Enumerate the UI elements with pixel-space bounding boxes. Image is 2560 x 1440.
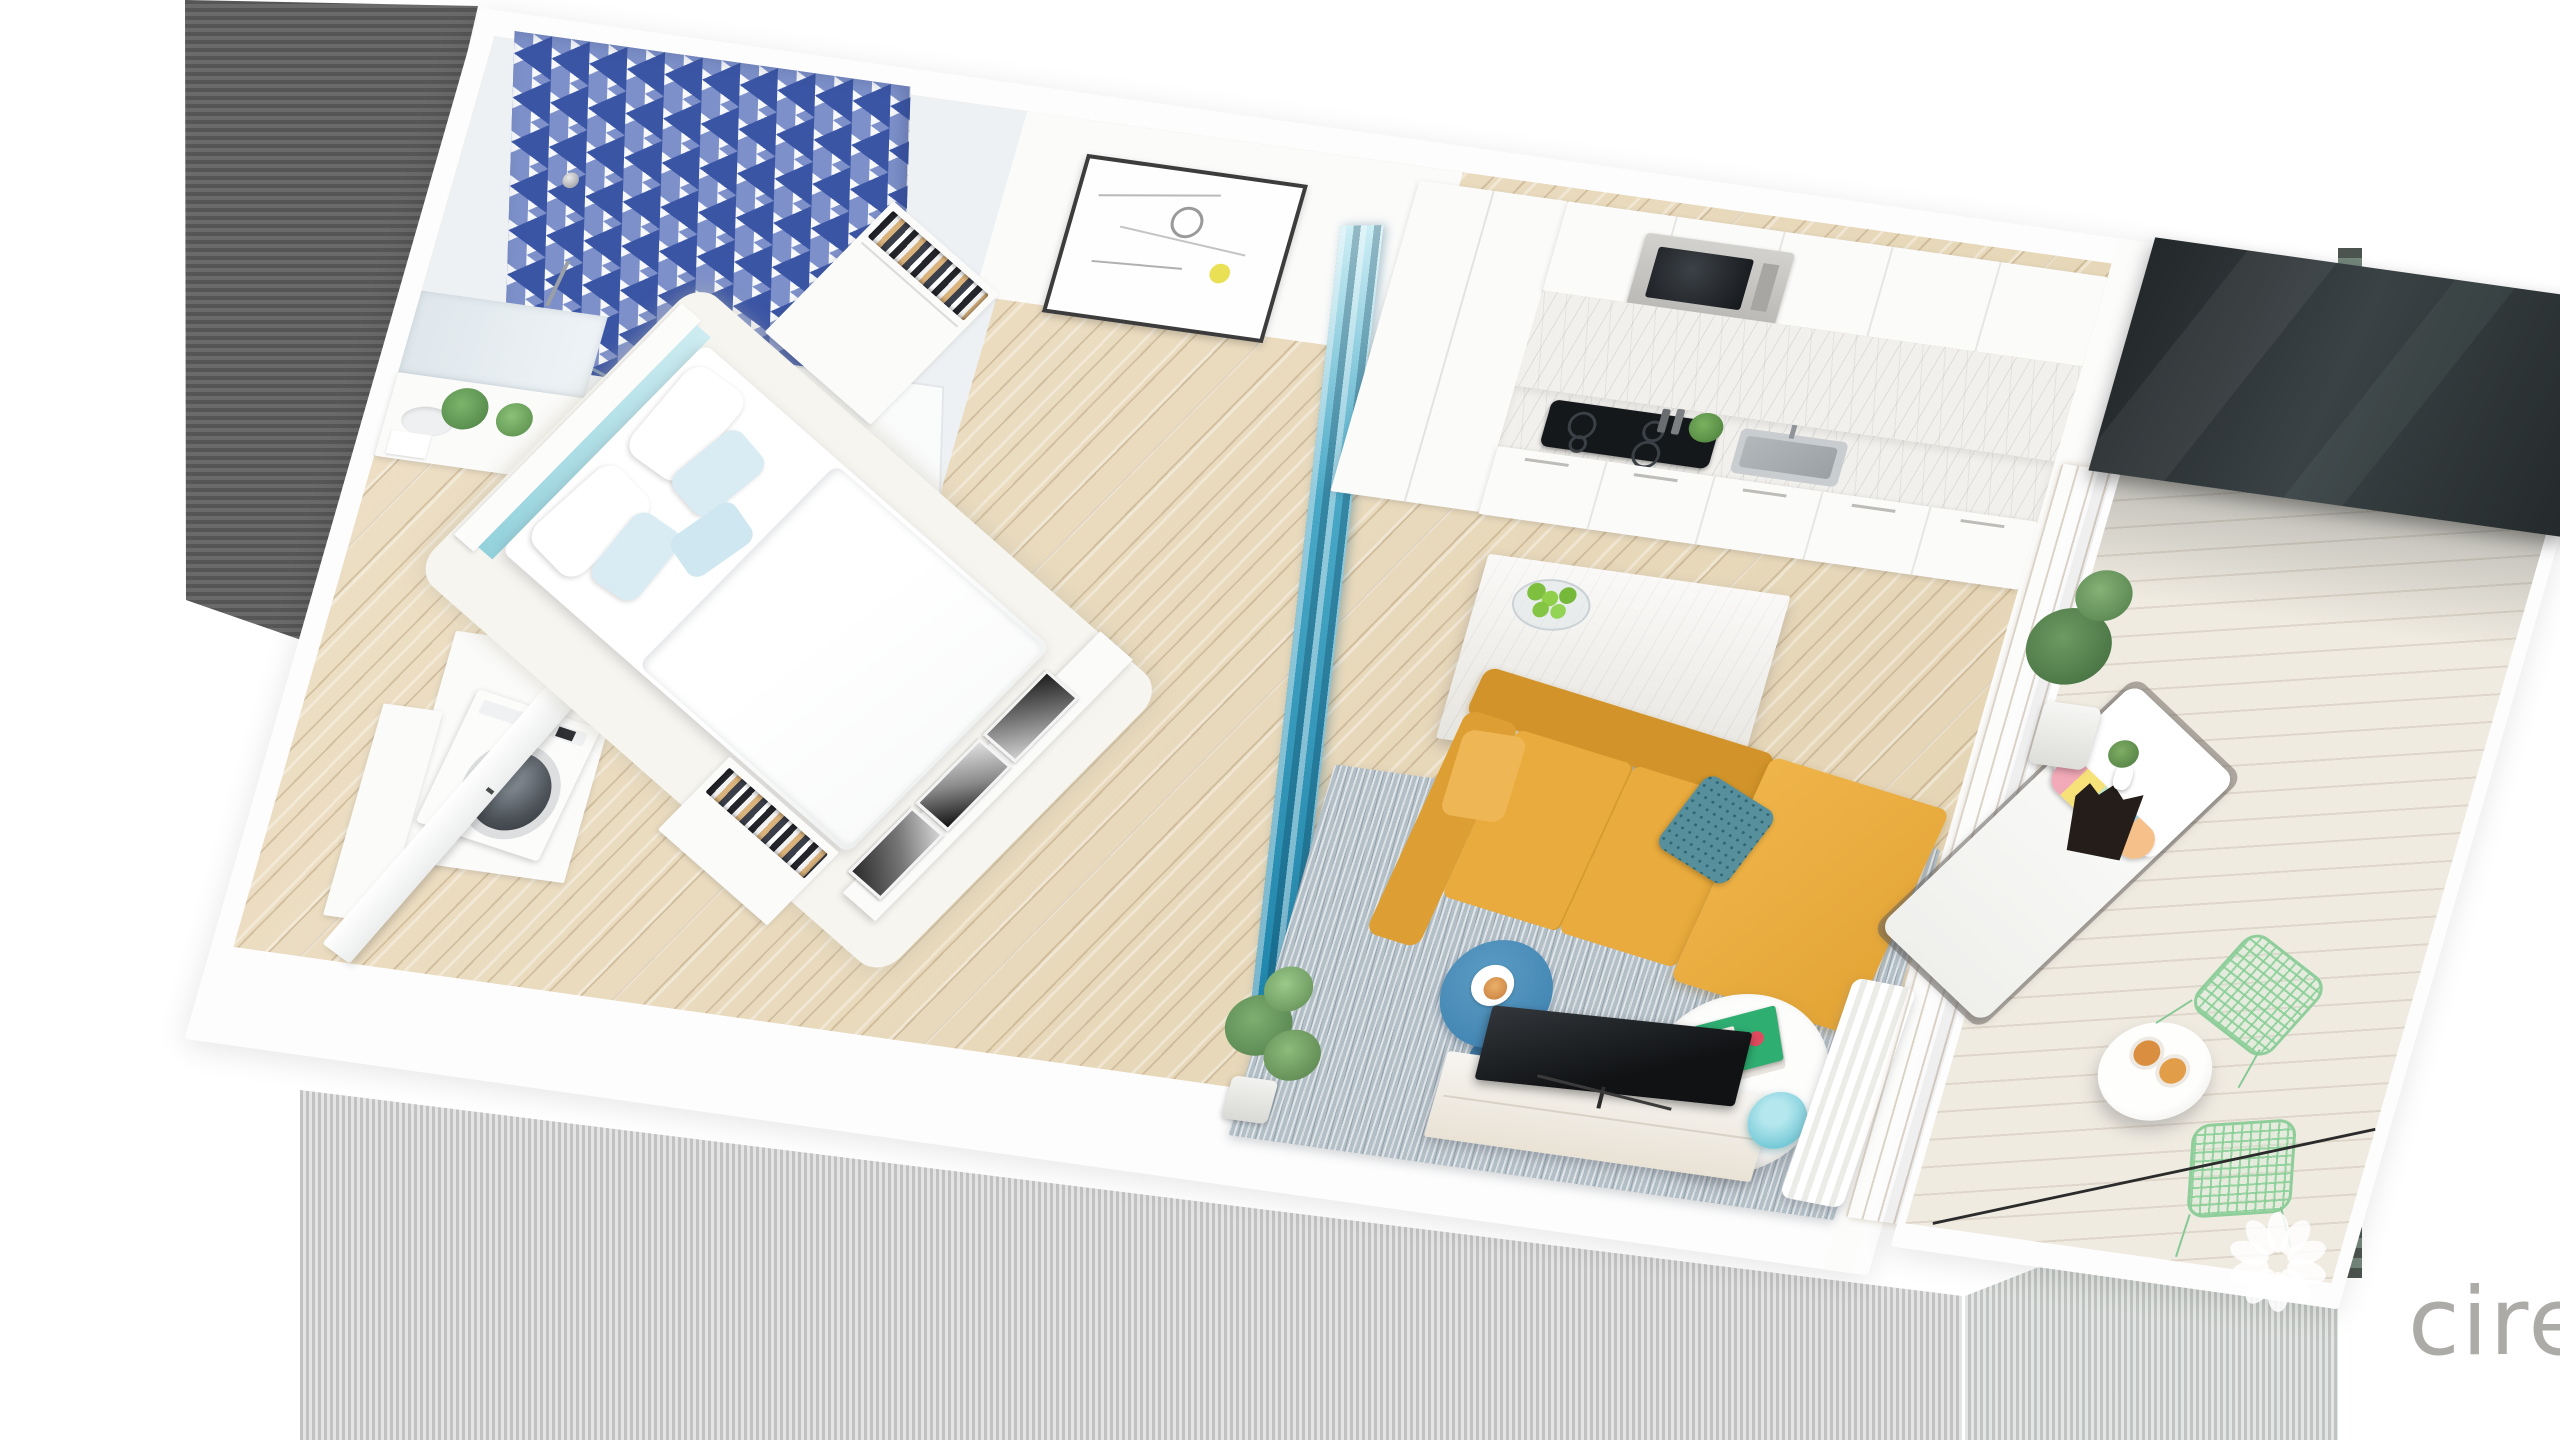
- cabinet-handle-icon: [1851, 504, 1895, 513]
- watermark-flower-logo-icon: [2218, 1202, 2338, 1322]
- cabinet-handle-icon: [1633, 473, 1677, 482]
- room-bedroom: [696, 342, 711, 356]
- cabinet-seam: [1974, 262, 2002, 352]
- cabinet-seam: [1910, 507, 1931, 575]
- sink-basin: [1738, 436, 1838, 480]
- cabinet-seam: [1586, 461, 1607, 529]
- cabinet-seam: [1802, 491, 1823, 559]
- art-line: [1098, 194, 1221, 196]
- door-handle-icon: [486, 787, 495, 795]
- cabinet-seam: [1866, 247, 1894, 337]
- art-line: [1091, 260, 1182, 270]
- art-yellow-dot: [1207, 262, 1232, 284]
- cabinet-seam: [1694, 476, 1715, 544]
- cabinet-seam: [1404, 191, 1495, 502]
- floorplan-render: TULUM: [0, 0, 2560, 1440]
- microwave-controls: [1750, 263, 1779, 312]
- mustard-sectional-sofa: [1483, 666, 1497, 678]
- microwave-window: [1645, 246, 1755, 310]
- watermark-text: cire: [2408, 1268, 2560, 1377]
- glass-reflection: [2075, 250, 2337, 481]
- art-circle: [1167, 205, 1208, 241]
- abstract-wall-art: [1042, 154, 1308, 343]
- cabinet-handle-icon: [1742, 488, 1786, 497]
- cabinet-handle-icon: [1525, 458, 1569, 467]
- glass-reflection: [2283, 280, 2515, 506]
- cabinet-handle-icon: [1960, 519, 2004, 528]
